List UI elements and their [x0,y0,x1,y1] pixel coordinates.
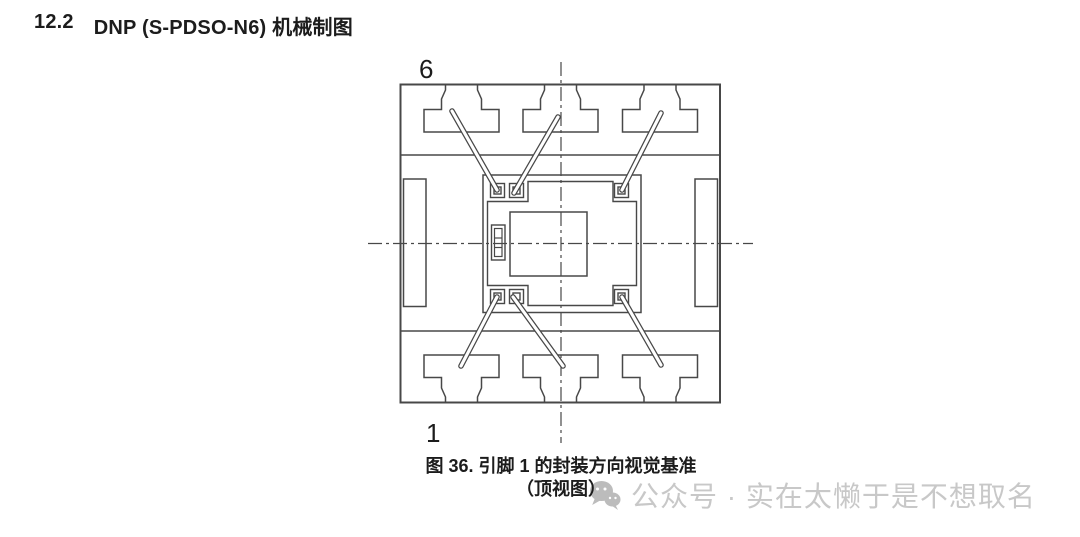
pin6-label: 6 [419,54,433,84]
side-terminal-left [404,179,427,307]
figure-caption: 图 36. 引脚 1 的封装方向视觉基准 （顶视图） [361,455,761,501]
pin-lead-top-right [623,85,698,133]
section-heading: 12.2 DNP (S-PDSO-N6) 机械制图 [34,11,353,40]
datasheet-page: 12.2 DNP (S-PDSO-N6) 机械制图 [0,0,1080,537]
figure-caption-title: 图 36. 引脚 1 的封装方向视觉基准 [361,455,761,478]
pin1-marker [492,225,506,260]
section-title: DNP (S-PDSO-N6) 机械制图 [94,11,353,40]
section-number: 12.2 [34,11,74,40]
figure-caption-subtitle: （顶视图） [361,478,761,501]
pin1-label: 1 [426,418,440,448]
side-terminal-right [695,179,718,307]
